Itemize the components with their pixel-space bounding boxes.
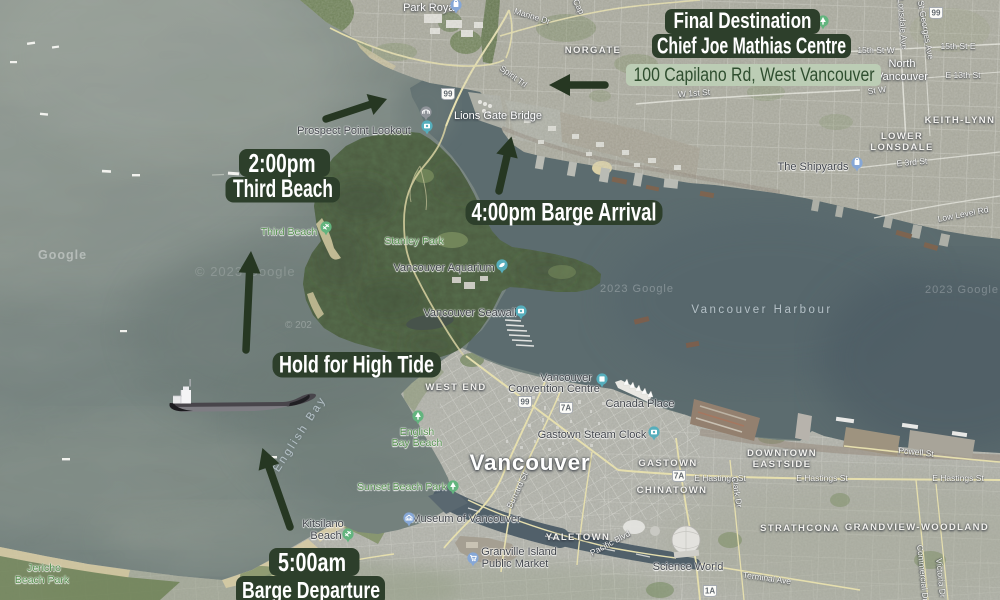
svg-text:Granville Island: Granville Island: [481, 546, 557, 558]
svg-text:99: 99: [444, 90, 453, 99]
svg-text:DOWNTOWN: DOWNTOWN: [747, 448, 817, 459]
svg-text:Google: Google: [38, 248, 87, 262]
svg-text:2023 Google: 2023 Google: [600, 283, 674, 295]
svg-text:15th St W: 15th St W: [857, 45, 894, 55]
svg-text:Vancouver: Vancouver: [876, 71, 928, 83]
svg-text:Convention Centre: Convention Centre: [508, 383, 600, 395]
svg-text:E Hastings St: E Hastings St: [796, 473, 848, 483]
svg-text:Vancouver Seawall: Vancouver Seawall: [423, 307, 516, 319]
svg-text:STRATHCONA: STRATHCONA: [760, 523, 840, 534]
svg-text:E 13th St: E 13th St: [946, 70, 982, 80]
svg-text:Vancouver: Vancouver: [469, 450, 590, 475]
svg-text:KEITH-LYNN: KEITH-LYNN: [925, 115, 996, 126]
svg-text:Third Beach: Third Beach: [261, 226, 318, 238]
svg-text:100 Capilano Rd, West Vancouve: 100 Capilano Rd, West Vancouver: [634, 65, 876, 86]
svg-text:Chief Joe Mathias Centre: Chief Joe Mathias Centre: [657, 33, 846, 59]
svg-text:7A: 7A: [674, 472, 684, 481]
svg-text:Vancouver Aquarium: Vancouver Aquarium: [393, 262, 494, 274]
svg-text:Third Beach: Third Beach: [233, 175, 333, 203]
svg-text:Museum of Vancouver: Museum of Vancouver: [411, 513, 521, 525]
svg-text:CHINATOWN: CHINATOWN: [637, 485, 708, 496]
svg-text:Barge Departure: Barge Departure: [242, 577, 380, 600]
svg-text:The Shipyards: The Shipyards: [778, 161, 849, 173]
svg-text:Bay Beach: Bay Beach: [392, 437, 443, 449]
svg-text:7A: 7A: [561, 404, 571, 413]
svg-text:EASTSIDE: EASTSIDE: [753, 459, 812, 470]
svg-text:Hold for High Tide: Hold for High Tide: [279, 352, 434, 379]
svg-text:Vancouver Harbour: Vancouver Harbour: [691, 304, 832, 316]
svg-text:WEST END: WEST END: [425, 382, 486, 393]
svg-text:GRANDVIEW-WOODLAND: GRANDVIEW-WOODLAND: [845, 522, 989, 533]
svg-text:Beach: Beach: [310, 530, 341, 542]
svg-text:© 202: © 202: [285, 320, 312, 331]
svg-text:E Hastings St: E Hastings St: [932, 473, 984, 483]
svg-text:Kitsilano: Kitsilano: [302, 518, 344, 530]
svg-text:Gastown Steam Clock: Gastown Steam Clock: [538, 429, 647, 441]
svg-text:5:00am: 5:00am: [278, 547, 346, 577]
svg-text:99: 99: [932, 9, 941, 18]
svg-text:NORGATE: NORGATE: [565, 45, 622, 56]
svg-text:Beach Park: Beach Park: [15, 574, 70, 586]
svg-text:LOWER: LOWER: [881, 131, 923, 142]
svg-text:Canada Place: Canada Place: [605, 398, 674, 410]
svg-text:Science World: Science World: [653, 561, 724, 573]
svg-text:1A: 1A: [705, 587, 715, 596]
svg-text:4:00pm Barge Arrival: 4:00pm Barge Arrival: [472, 199, 657, 227]
svg-text:Park Royal: Park Royal: [403, 2, 457, 14]
svg-text:Final Destination: Final Destination: [674, 8, 812, 33]
svg-text:2:00pm: 2:00pm: [249, 148, 316, 178]
svg-text:Prospect Point Lookout: Prospect Point Lookout: [297, 125, 411, 137]
svg-text:Sunset Beach Park: Sunset Beach Park: [357, 481, 448, 493]
svg-text:Jericho: Jericho: [27, 562, 61, 574]
svg-text:LONSDALE: LONSDALE: [870, 142, 933, 153]
svg-text:YALETOWN: YALETOWN: [546, 532, 611, 543]
svg-text:2023 Google: 2023 Google: [925, 284, 999, 296]
svg-text:GASTOWN: GASTOWN: [638, 458, 697, 469]
svg-text:Public Market: Public Market: [482, 558, 549, 570]
svg-text:North: North: [889, 58, 916, 70]
svg-text:Stanley Park: Stanley Park: [384, 235, 444, 247]
svg-text:99: 99: [521, 398, 530, 407]
svg-text:Lions Gate Bridge: Lions Gate Bridge: [454, 110, 542, 122]
svg-text:15th St E: 15th St E: [941, 41, 976, 51]
